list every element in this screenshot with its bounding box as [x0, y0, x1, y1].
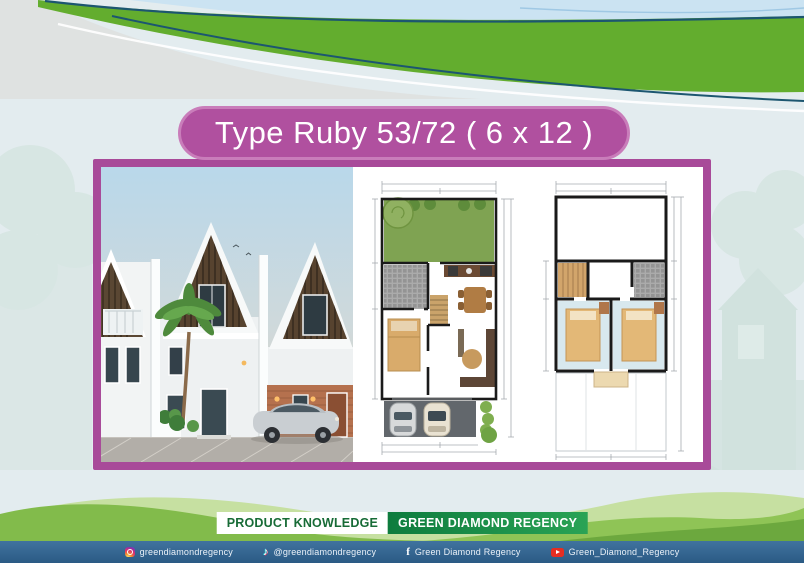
left-house-graphic — [101, 249, 153, 437]
bedroom-right — [613, 301, 664, 369]
title-banner: Type Ruby 53/72 ( 6 x 12 ) — [178, 106, 630, 160]
floor-plan-upper — [536, 169, 688, 460]
youtube-handle: Green_Diamond_Regency — [569, 547, 680, 557]
facebook-icon: f — [406, 547, 410, 557]
header-wave-graphic — [0, 0, 804, 116]
facebook-handle: Green Diamond Regency — [415, 547, 521, 557]
product-knowledge-label: PRODUCT KNOWLEDGE — [227, 516, 378, 530]
badges-row: PRODUCT KNOWLEDGE GREEN DIAMOND REGENCY — [217, 512, 588, 534]
balcony-graphic — [594, 372, 628, 387]
youtube-icon — [551, 548, 564, 557]
instagram-handle: greendiamondregency — [140, 547, 233, 557]
stairs-graphic — [558, 263, 588, 297]
floor-plan-ground — [368, 169, 520, 460]
title-text: Type Ruby 53/72 ( 6 x 12 ) — [215, 115, 593, 151]
social-tiktok[interactable]: ♪ @greendiamondregency — [263, 547, 376, 557]
floorplans-area — [353, 167, 703, 462]
gallery-panel — [93, 159, 711, 470]
house-exterior-render — [101, 167, 353, 462]
tiktok-handle: @greendiamondregency — [273, 547, 376, 557]
instagram-icon — [125, 547, 135, 557]
bedroom-left — [558, 301, 609, 369]
brand-badge: GREEN DIAMOND REGENCY — [388, 512, 587, 534]
product-knowledge-badge: PRODUCT KNOWLEDGE — [217, 512, 388, 534]
brand-label: GREEN DIAMOND REGENCY — [398, 516, 577, 530]
stairs-graphic — [430, 295, 448, 325]
kitchen-graphic — [444, 265, 496, 277]
tree-graphic — [383, 198, 413, 228]
social-facebook[interactable]: f Green Diamond Regency — [406, 547, 520, 557]
bathroom-tile — [634, 263, 664, 297]
social-youtube[interactable]: Green_Diamond_Regency — [551, 547, 680, 557]
patio-tile — [384, 265, 428, 309]
carport-graphic — [384, 401, 476, 437]
bedroom-graphic — [388, 319, 420, 371]
tiktok-icon: ♪ — [263, 547, 269, 557]
social-instagram[interactable]: greendiamondregency — [125, 547, 233, 557]
footer-social-bar: greendiamondregency ♪ @greendiamondregen… — [0, 541, 804, 563]
slide: Type Ruby 53/72 ( 6 x 12 ) — [0, 0, 804, 563]
